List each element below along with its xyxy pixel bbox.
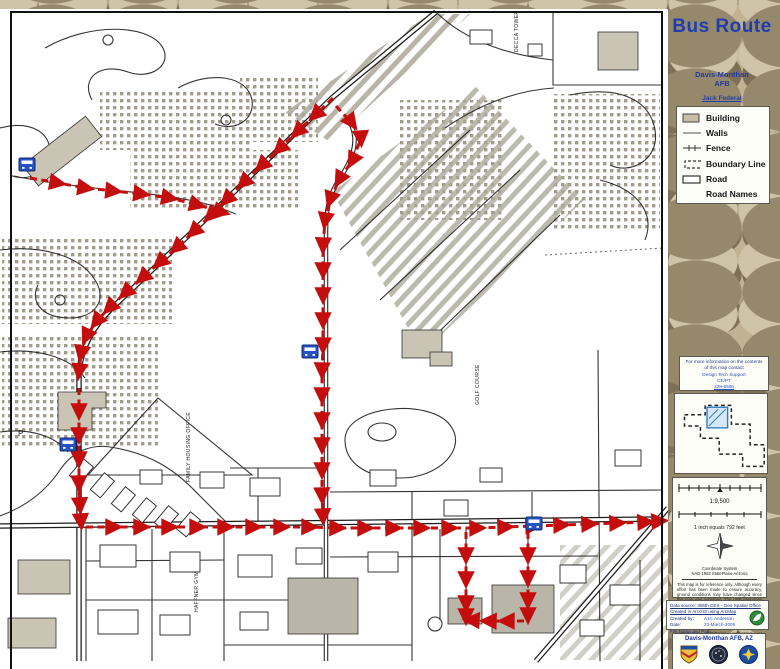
fence-swatch	[681, 142, 703, 154]
page-title: Bus Route	[668, 16, 776, 38]
boundary-line	[545, 248, 663, 255]
street-label: P	[18, 429, 24, 438]
road-swatch	[681, 173, 703, 185]
wing-shield-emblem-icon	[679, 644, 700, 665]
legend-item-fence: Fence	[681, 141, 765, 156]
walls-swatch	[681, 127, 703, 139]
data-source-box: Data source: 355th CES - Geo Spatial Off…	[666, 600, 769, 630]
author-link[interactable]: Jack Federal	[668, 95, 776, 102]
legend-item-building: Building	[681, 110, 765, 125]
boundary-swatch	[681, 158, 703, 170]
blue-round-emblem-icon	[738, 644, 759, 665]
street-label: DECCA TOWER	[514, 11, 520, 52]
base-name: Davis-Monthan AFB	[668, 70, 776, 89]
street-label: FAMILY HOUSING OFFICE	[186, 412, 192, 482]
current-extent-indicator	[707, 407, 728, 428]
bus-stop-icon[interactable]	[19, 158, 35, 171]
base-footer-box: Davis-Monthan AFB, AZ	[672, 633, 766, 669]
legend-item-road-names: Road Names	[681, 186, 765, 201]
base-street-map: GOLF COURSEFAMILY HOUSING OFFICEHAFFNER …	[0, 9, 668, 669]
street-label: HAFFNER GYM	[194, 571, 200, 612]
locator-map	[674, 393, 768, 474]
legend-item-boundary-line: Boundary Line	[681, 156, 765, 171]
building-swatch	[681, 112, 703, 124]
bus-stop-icon[interactable]	[302, 345, 318, 358]
bus-stop-icon[interactable]	[526, 517, 542, 530]
contact-phone: 228-5506	[683, 384, 765, 390]
locator-outline	[677, 396, 767, 471]
scale-box: 1:9,500 1 inch equals 792 feet Coordinat…	[672, 477, 767, 598]
scale-bar-feet	[677, 510, 763, 519]
divider	[682, 579, 757, 580]
legend-item-walls: Walls	[681, 125, 765, 140]
dark-round-emblem-icon	[708, 644, 729, 665]
legend-item-road: Road	[681, 171, 765, 186]
street-label: GOLF COURSE	[475, 364, 481, 405]
contact-info-box: For more information on the contents of …	[679, 356, 769, 391]
gis-software-logo	[749, 610, 765, 626]
empty-swatch	[681, 188, 703, 200]
emblem-row	[675, 644, 763, 665]
coordinate-system: Coordinate System NAD 1983 StatePlane Ar…	[676, 566, 763, 577]
bus-route-map-page: GOLF COURSEFAMILY HOUSING OFFICEHAFFNER …	[0, 0, 780, 669]
map-sheet: GOLF COURSEFAMILY HOUSING OFFICEHAFFNER …	[0, 9, 668, 669]
bus-stop-icon[interactable]	[60, 438, 76, 451]
scale-bar	[677, 483, 763, 493]
footer-title: Davis-Monthan AFB, AZ	[675, 636, 763, 642]
legend: Building Walls Fence Boundary Line Road …	[676, 106, 770, 204]
north-arrow-icon	[705, 531, 735, 561]
scale-ratio: 1:9,500	[676, 499, 763, 505]
